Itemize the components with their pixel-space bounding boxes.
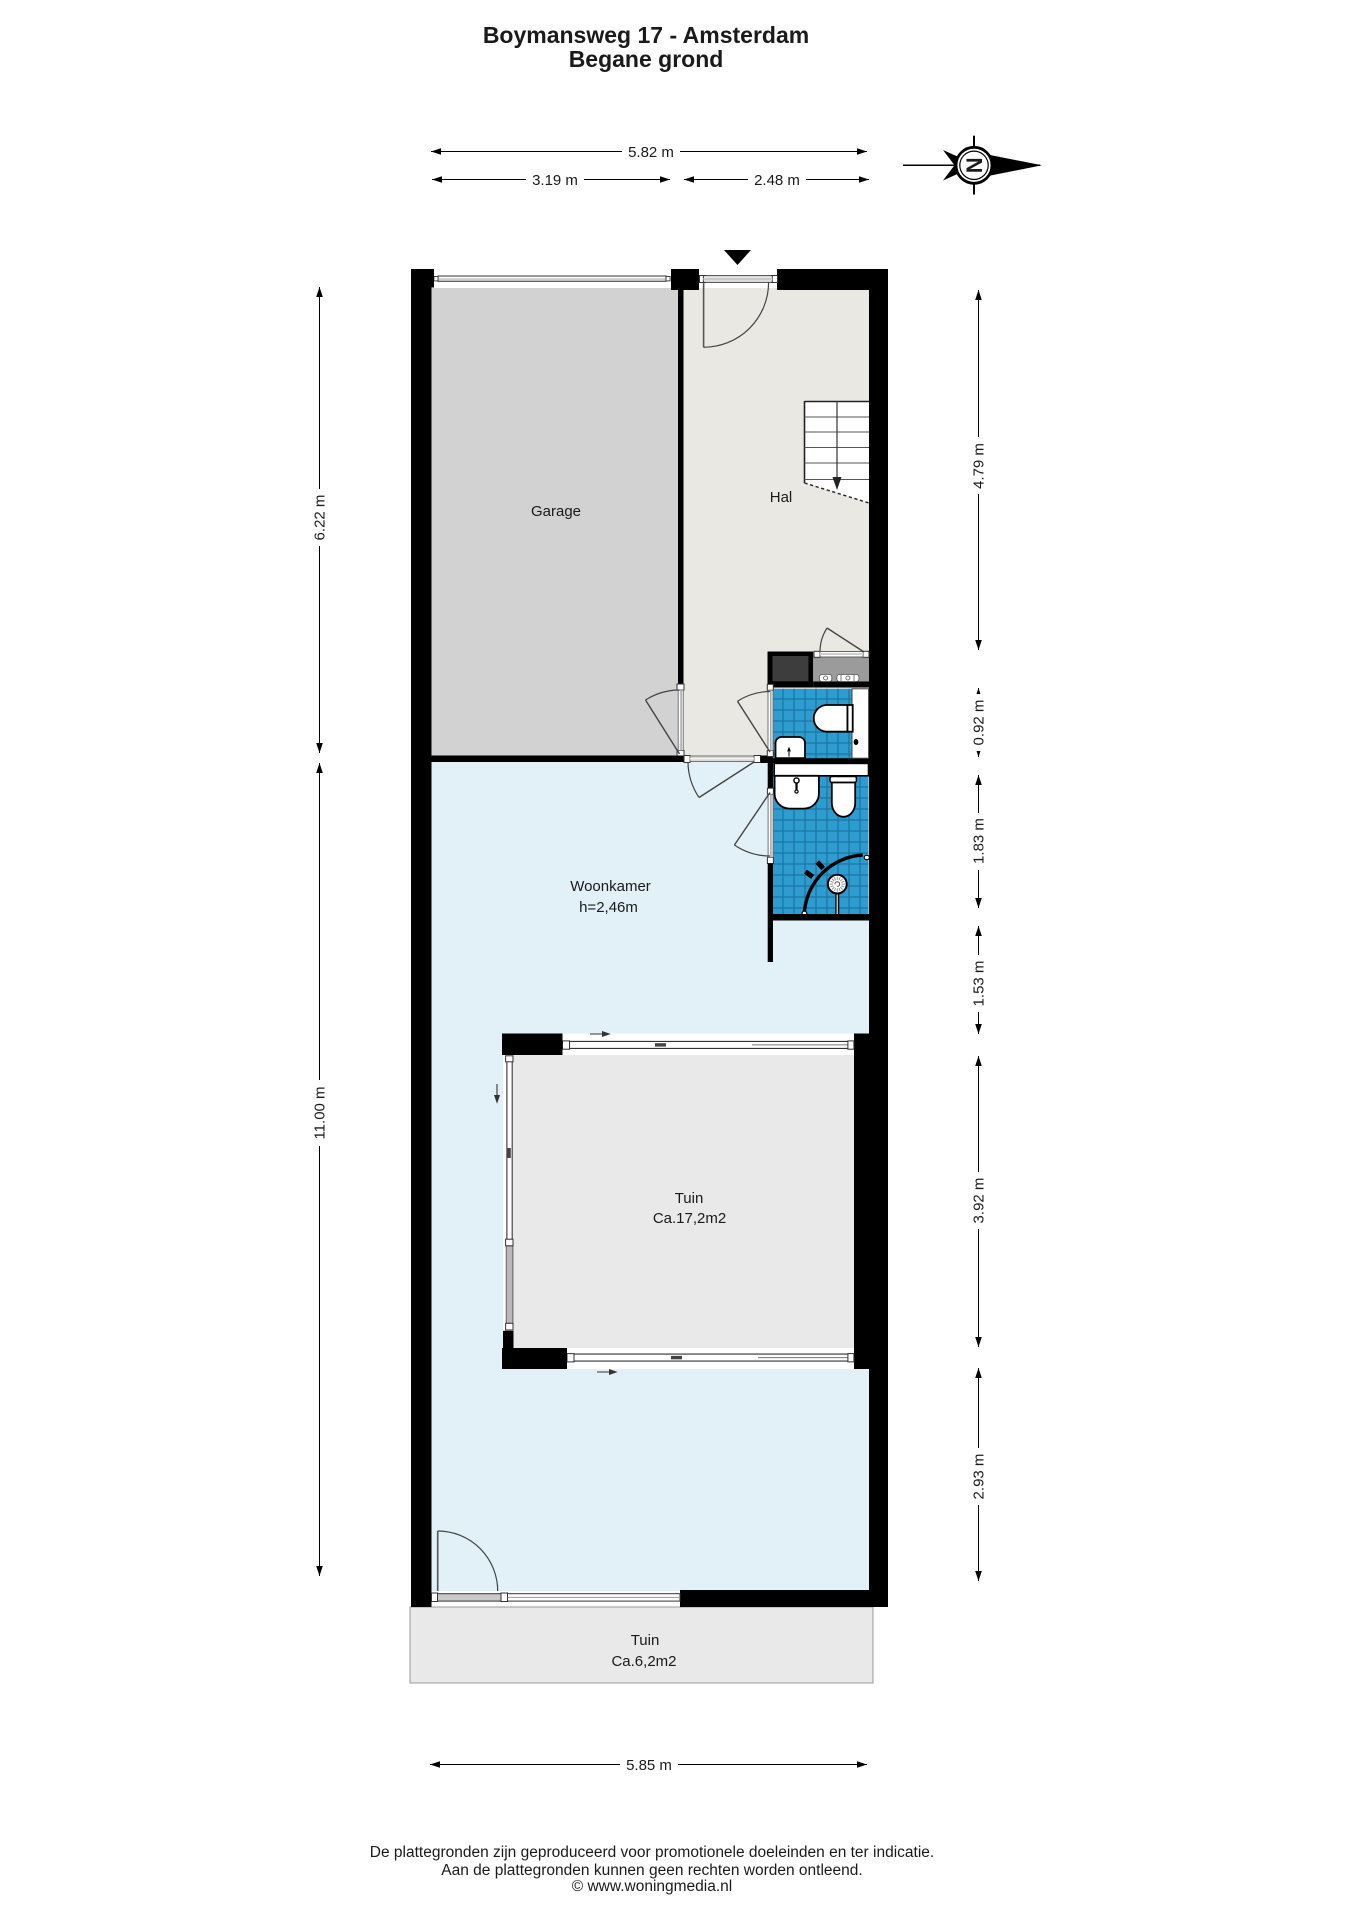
svg-text:Aan de plattegronden kunnen ge: Aan de plattegronden kunnen geen rechten… (441, 1862, 862, 1879)
svg-text:Garage: Garage (531, 503, 581, 520)
svg-text:Begane grond: Begane grond (569, 46, 724, 72)
svg-text:Tuin: Tuin (675, 1190, 704, 1207)
svg-text:1.83 m: 1.83 m (971, 818, 988, 864)
svg-text:h=2,46m: h=2,46m (579, 899, 638, 916)
svg-text:De plattegronden zijn geproduc: De plattegronden zijn geproduceerd voor … (370, 1844, 934, 1861)
svg-text:2.48 m: 2.48 m (754, 172, 800, 189)
svg-text:3.19 m: 3.19 m (532, 172, 578, 189)
svg-text:2.93 m: 2.93 m (971, 1454, 988, 1500)
svg-text:5.85 m: 5.85 m (626, 1757, 672, 1774)
svg-text:1.53 m: 1.53 m (971, 961, 988, 1007)
svg-text:N: N (962, 157, 987, 173)
svg-text:11.00 m: 11.00 m (312, 1086, 329, 1139)
svg-text:6.22 m: 6.22 m (312, 495, 329, 541)
svg-text:Woonkamer: Woonkamer (570, 878, 651, 895)
svg-text:Tuin: Tuin (631, 1632, 660, 1649)
svg-text:Boymansweg 17 - Amsterdam: Boymansweg 17 - Amsterdam (483, 22, 809, 48)
svg-text:5.82 m: 5.82 m (628, 144, 674, 161)
svg-text:Ca.17,2m2: Ca.17,2m2 (653, 1210, 726, 1227)
svg-text:Ca.6,2m2: Ca.6,2m2 (611, 1653, 676, 1670)
svg-text:© www.woningmedia.nl: © www.woningmedia.nl (572, 1878, 732, 1895)
svg-text:3.92 m: 3.92 m (971, 1178, 988, 1224)
svg-text:4.79 m: 4.79 m (971, 443, 988, 489)
svg-text:Hal: Hal (770, 489, 793, 506)
svg-text:0.92 m: 0.92 m (971, 700, 988, 746)
